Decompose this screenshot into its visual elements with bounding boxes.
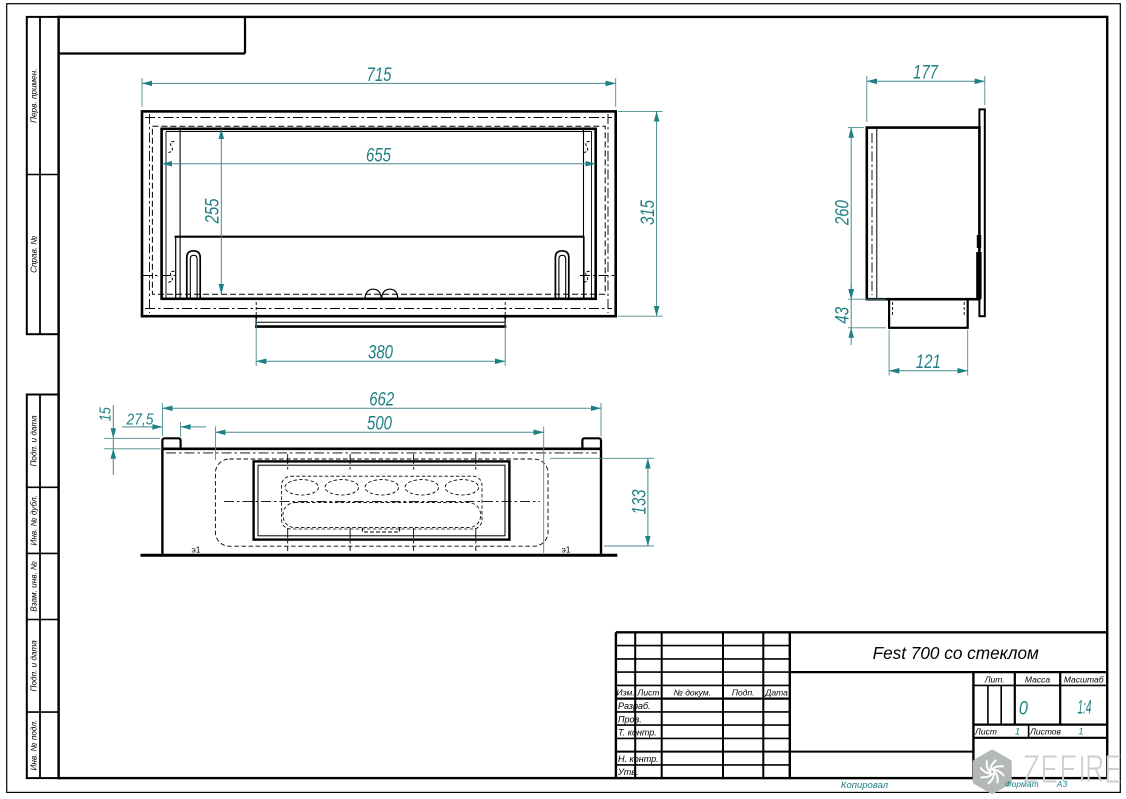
svg-text:Копировал: Копировал: [841, 780, 889, 791]
svg-text:№ докум.: № докум.: [674, 687, 711, 697]
svg-text:Масштаб: Масштаб: [1064, 674, 1105, 684]
svg-text:Пров.: Пров.: [618, 714, 642, 724]
svg-text:А3: А3: [1056, 779, 1068, 789]
svg-text:380: 380: [368, 343, 393, 364]
svg-text:662: 662: [369, 390, 394, 411]
svg-text:Т. контр.: Т. контр.: [618, 728, 657, 738]
svg-text:Разраб.: Разраб.: [618, 701, 651, 711]
svg-text:260: 260: [833, 200, 854, 226]
svg-text:Справ. №: Справ. №: [30, 236, 39, 273]
svg-text:Формат: Формат: [1005, 779, 1039, 789]
svg-text:500: 500: [367, 414, 392, 435]
svg-text:э1: э1: [191, 545, 200, 555]
svg-text:27,5: 27,5: [126, 411, 154, 428]
svg-text:655: 655: [366, 145, 391, 166]
svg-text:15: 15: [98, 407, 115, 421]
svg-text:Утв.: Утв.: [617, 767, 638, 777]
svg-text:Подп. и дата: Подп. и дата: [30, 415, 39, 467]
svg-text:133: 133: [629, 489, 650, 514]
svg-text:121: 121: [916, 352, 941, 373]
svg-text:43: 43: [833, 306, 854, 323]
svg-text:1: 1: [1078, 726, 1083, 737]
svg-text:255: 255: [203, 198, 224, 224]
svg-text:Дата: Дата: [764, 687, 788, 697]
svg-text:Взам. инв. №: Взам. инв. №: [30, 561, 39, 612]
svg-text:715: 715: [367, 65, 392, 86]
svg-text:Листов: Листов: [1029, 726, 1062, 736]
svg-text:Подп.: Подп.: [732, 687, 755, 697]
svg-text:Инв. № подл.: Инв. № подл.: [30, 720, 39, 771]
svg-text:0: 0: [1019, 699, 1028, 720]
svg-text:315: 315: [638, 200, 659, 225]
svg-text:Изм.: Изм.: [617, 687, 635, 697]
svg-text:Fest 700 со стеклом: Fest 700 со стеклом: [873, 643, 1039, 663]
svg-text:Лист: Лист: [637, 687, 660, 697]
svg-text:Масса: Масса: [1025, 674, 1050, 684]
svg-text:Перв. примен.: Перв. примен.: [30, 68, 39, 122]
svg-text:1: 1: [1015, 726, 1020, 737]
svg-text:Лит.: Лит.: [984, 674, 1005, 684]
svg-text:Лист: Лист: [974, 726, 997, 736]
svg-text:Подп. и дата: Подп. и дата: [30, 640, 39, 692]
svg-text:177: 177: [913, 63, 939, 84]
svg-text:э1: э1: [561, 545, 570, 555]
svg-text:Н. контр.: Н. контр.: [618, 754, 659, 764]
svg-text:Инв. № дубл.: Инв. № дубл.: [30, 495, 39, 545]
svg-text:1:4: 1:4: [1078, 698, 1092, 719]
